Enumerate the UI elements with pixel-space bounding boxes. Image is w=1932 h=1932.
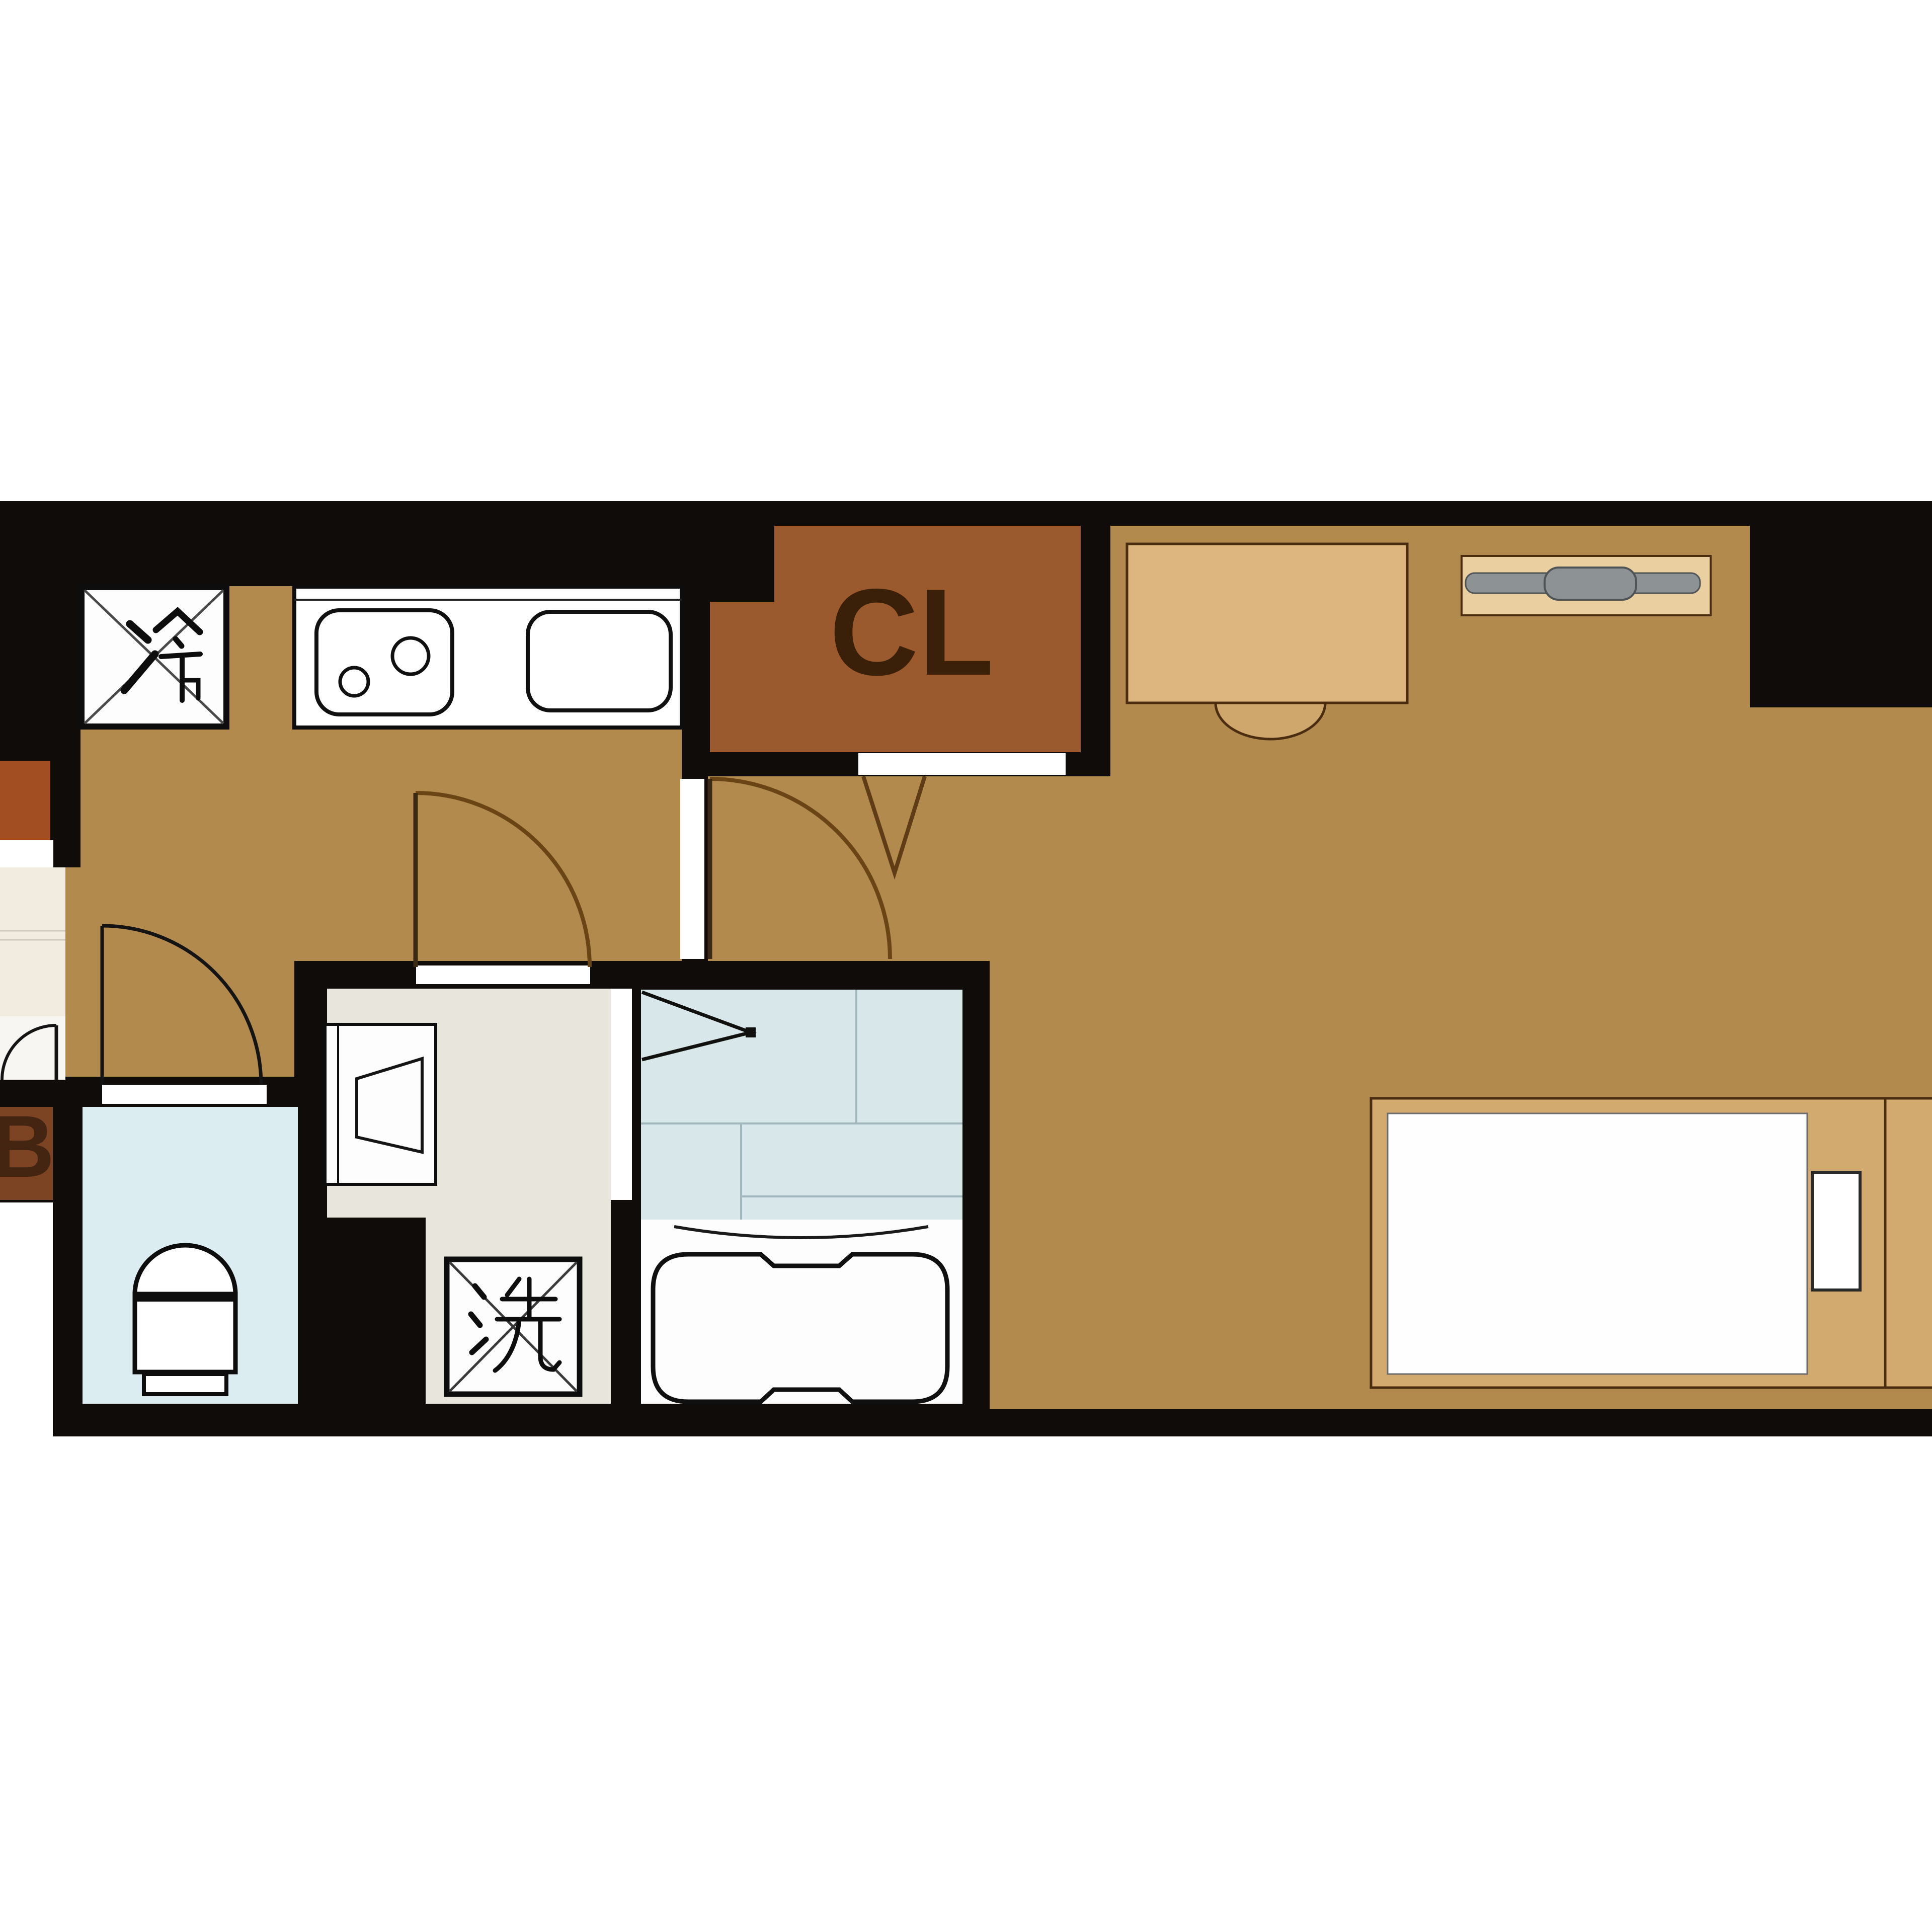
svg-text:B: B: [0, 1098, 54, 1196]
svg-text:CL: CL: [830, 563, 994, 701]
